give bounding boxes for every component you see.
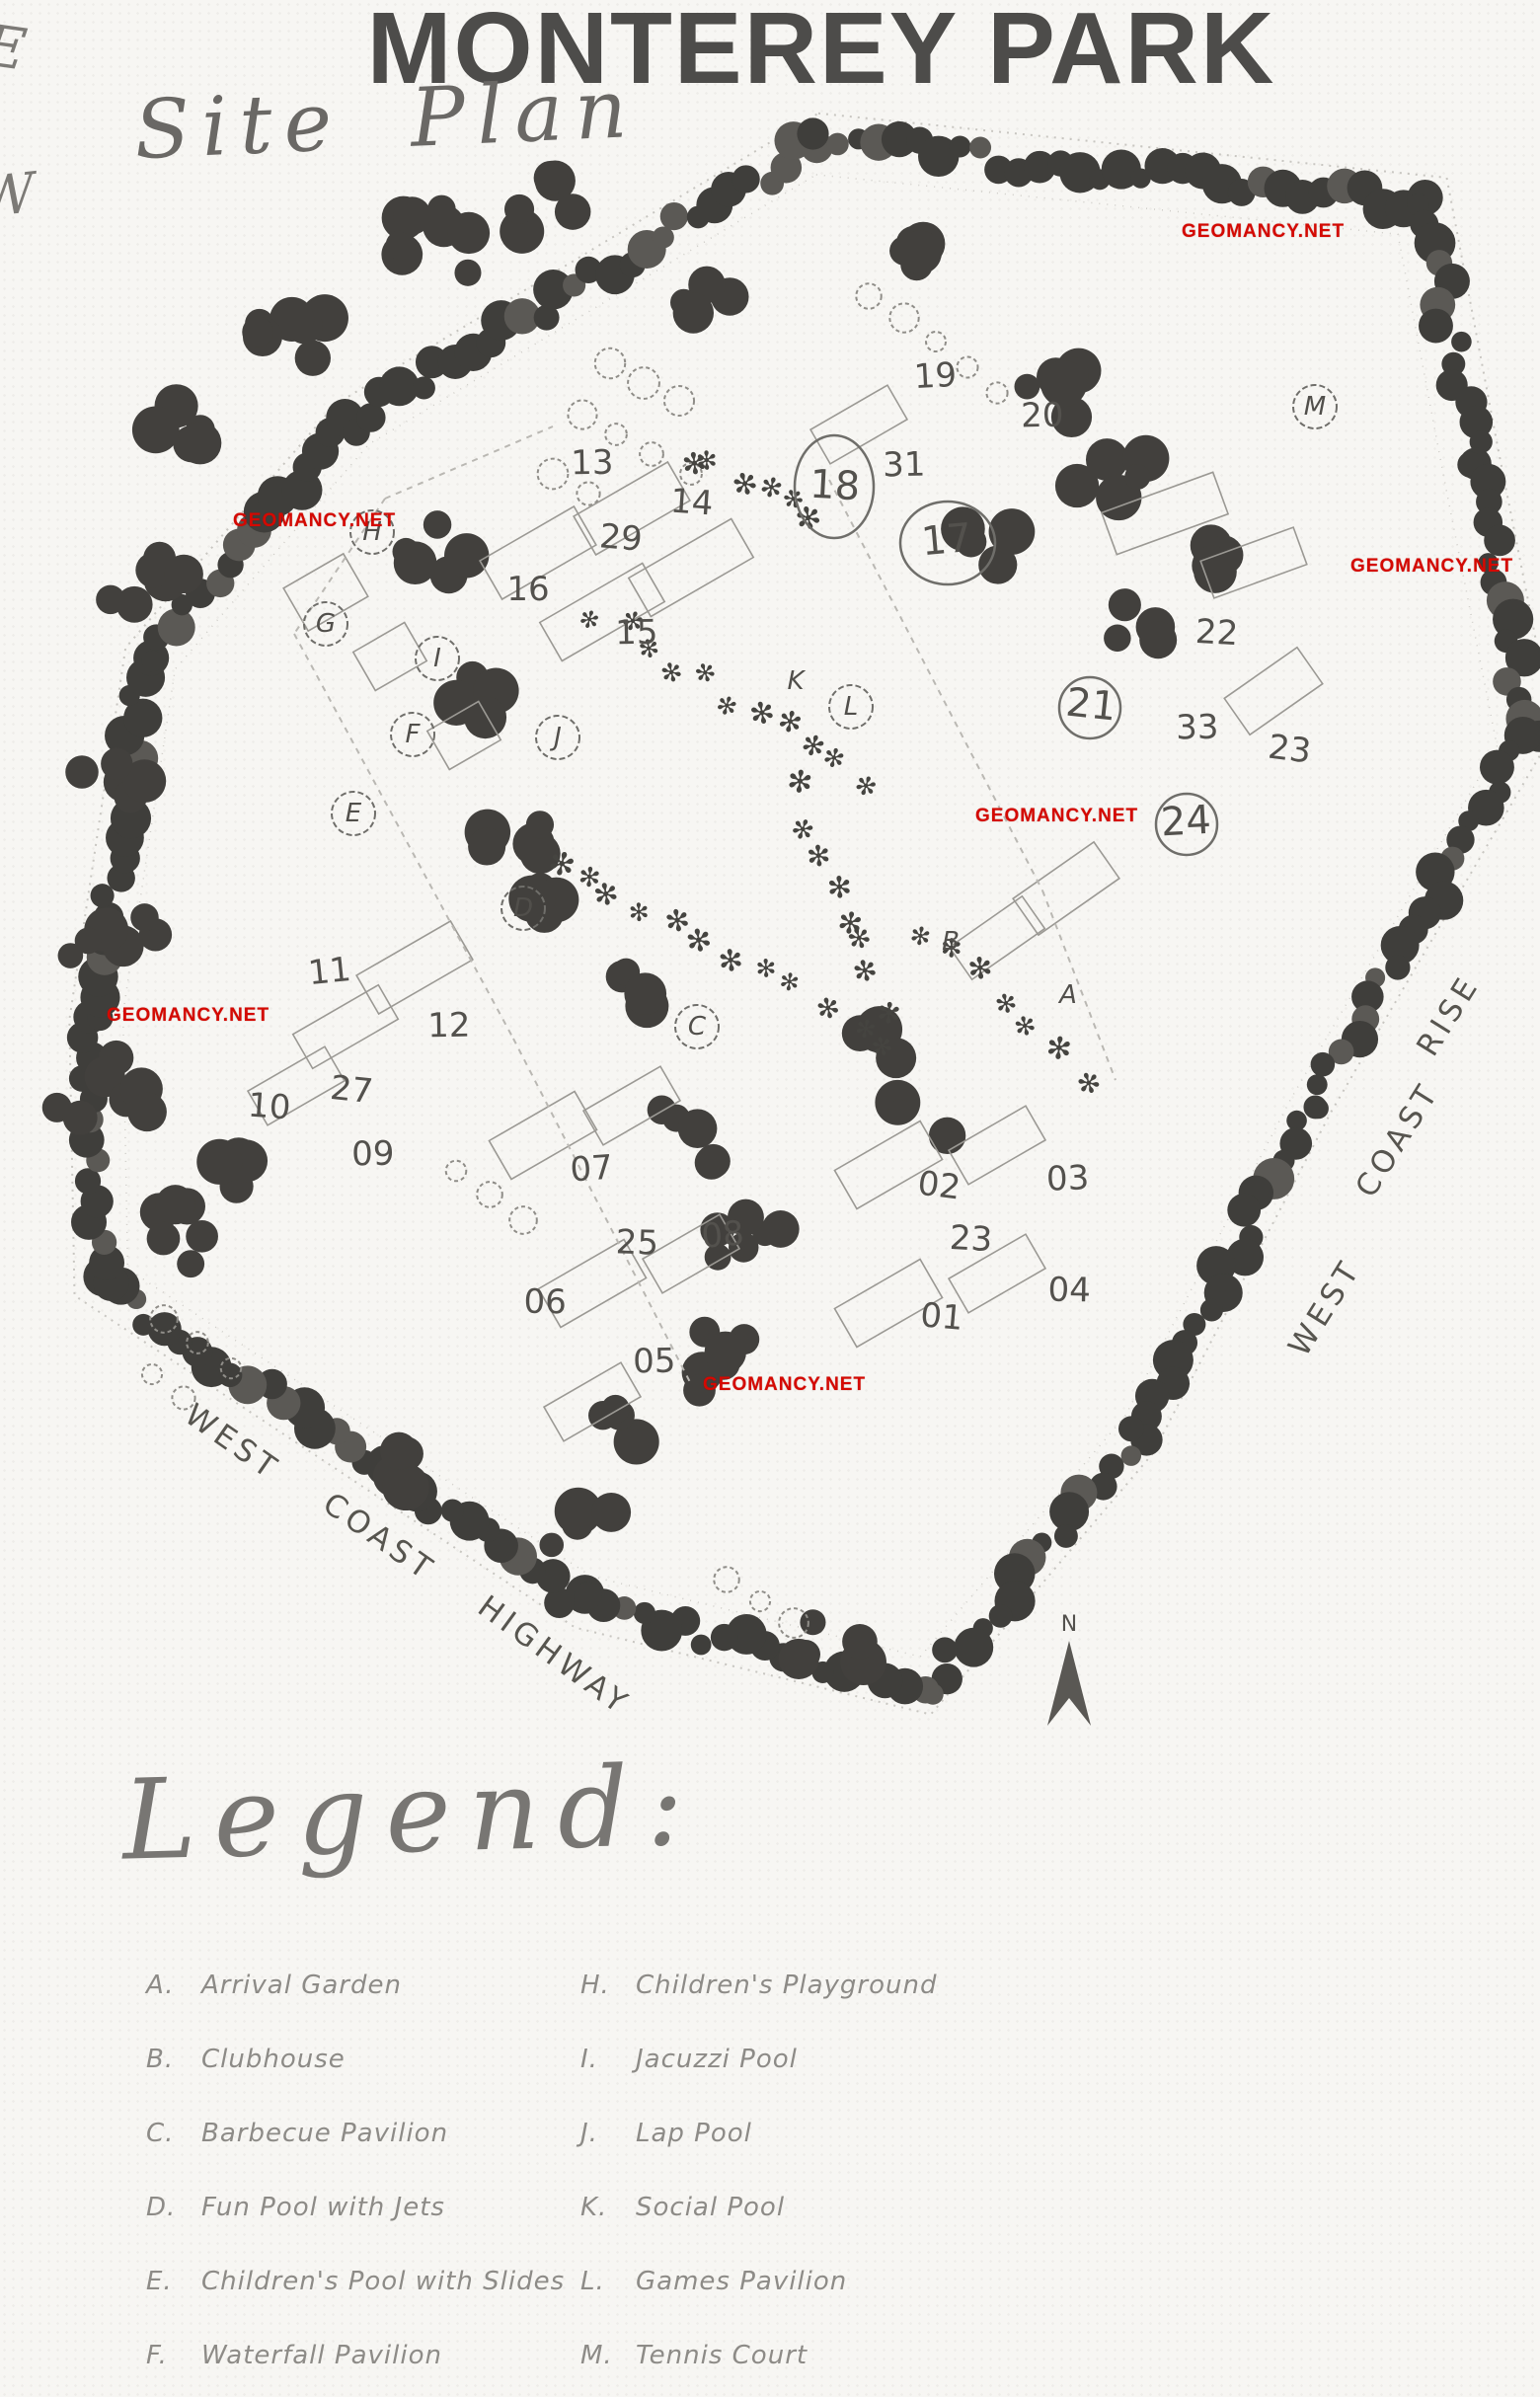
lot-label: 01 [919, 1295, 965, 1339]
legend-item-label: Children's Pool with Slides [201, 2267, 565, 2296]
tree-cluster [156, 1185, 195, 1224]
perimeter-tree [1227, 1194, 1261, 1227]
internal-road [513, 1039, 691, 1384]
building-footprint [1013, 842, 1119, 935]
plant-glyph: ✻ [785, 763, 814, 802]
tree-outline [577, 482, 599, 504]
tree-cluster [842, 1624, 878, 1660]
legend-item-key: I. [580, 2045, 636, 2074]
legend-item-key: L. [580, 2267, 636, 2296]
perimeter-tree [441, 1499, 464, 1521]
tree-outline [926, 332, 946, 351]
legend-item-key: C. [146, 2119, 201, 2148]
plant-glyph: ✻ [1044, 1030, 1074, 1068]
building-footprint [1224, 648, 1323, 735]
tree-cluster [101, 747, 132, 779]
tree-outline [142, 1364, 162, 1384]
street-name-word: COAST [1348, 1076, 1447, 1204]
tree-cluster [196, 1139, 242, 1185]
perimeter-tree [1385, 955, 1410, 979]
legend-item-label: Clubhouse [201, 2045, 346, 2074]
legend-item-key: D. [146, 2193, 201, 2222]
perimeter-tree [634, 1602, 655, 1624]
plant-glyph: ✻ [755, 954, 777, 983]
facility-label: G [316, 609, 336, 639]
lot-label: 31 [883, 445, 926, 486]
plant-glyph: ✻ [628, 897, 650, 927]
lot-label: 02 [915, 1164, 962, 1208]
legend-item-key: H. [580, 1971, 636, 2000]
legend-item-b: B.Clubhouse [146, 2045, 565, 2119]
legend-item-label: Lap Pool [636, 2119, 752, 2148]
lot-label: 20 [1021, 396, 1064, 436]
legend-item-m: M.Tennis Court [580, 2341, 938, 2397]
tree-outline [568, 400, 596, 428]
tree-cluster [63, 1101, 98, 1135]
tree-cluster [555, 193, 591, 230]
plant-glyph: ✻ [691, 657, 720, 690]
perimeter-tree [1054, 1524, 1078, 1548]
lot-label: 16 [506, 570, 549, 609]
building-footprint [629, 519, 753, 617]
plant-glyph: ✻ [683, 921, 715, 961]
facility-label: E [346, 799, 362, 828]
tree-cluster [177, 1250, 204, 1277]
perimeter-tree [413, 376, 435, 399]
plant-glyph: ✻ [1073, 1064, 1106, 1103]
tree-cluster [65, 755, 99, 789]
perimeter-tree [1419, 309, 1453, 344]
tree-cluster [887, 1100, 912, 1124]
legend-item-a: A.Arrival Garden [146, 1971, 565, 2045]
geomancy-watermark: GEOMANCY.NET [1350, 556, 1513, 578]
plant-glyph: ✻ [717, 943, 745, 979]
legend-item-key: B. [146, 2045, 201, 2074]
tree-cluster [800, 1609, 825, 1635]
tree-outline [477, 1182, 502, 1207]
facility-label: A [1057, 980, 1077, 1010]
building-footprint [356, 921, 473, 1014]
building-footprint [353, 623, 426, 691]
plant-glyph: ✻ [849, 952, 881, 990]
tree-cluster [464, 696, 506, 738]
tree-cluster [504, 194, 534, 224]
tree-cluster [1109, 588, 1141, 621]
plant-glyph: ✻ [778, 967, 801, 997]
perimeter-tree [711, 1624, 737, 1651]
legend-item-label: Games Pavilion [636, 2267, 847, 2296]
tree-cluster [678, 1109, 718, 1148]
lot-label: 21 [1064, 680, 1118, 731]
tree-cluster [624, 972, 666, 1015]
legend-column-left: A.Arrival GardenB.ClubhouseC.Barbecue Pa… [146, 1971, 565, 2397]
plant-glyph: ✻ [695, 446, 718, 477]
tree-cluster [696, 1144, 731, 1179]
perimeter-tree [1118, 1416, 1144, 1441]
legend-heading: Legend: [120, 1741, 702, 1885]
legend-item-k: K.Social Pool [580, 2193, 938, 2267]
tree-cluster [423, 510, 452, 539]
scanned-site-plan-page: ✻✻✻✻✻✻✻✻✻✻✻✻✻✻✻✻✻✻✻✻✻✻✻✻✻✻✻✻✻✻✻✻✻✻✻✻✻✻✻✻… [0, 0, 1540, 2397]
tree-cluster [58, 943, 84, 968]
legend-item-key: J. [580, 2119, 636, 2148]
tree-outline [595, 348, 626, 379]
facility-label: J [549, 723, 562, 752]
perimeter-tree [954, 1628, 993, 1667]
lot-label: 05 [633, 1342, 676, 1382]
legend-item-key: E. [146, 2267, 201, 2296]
tree-cluster [186, 1220, 218, 1253]
facility-label: I [433, 644, 441, 673]
tree-outline [628, 367, 659, 399]
tree-cluster [127, 1092, 167, 1131]
lot-label: 33 [1176, 708, 1219, 748]
street-name-word: WEST [1281, 1253, 1368, 1362]
building-footprint [949, 1106, 1045, 1185]
perimeter-tree [1307, 1074, 1328, 1095]
legend-item-label: Tennis Court [636, 2341, 808, 2370]
legend-item-f: F.Waterfall Pavilion [146, 2341, 565, 2397]
legend-item-key: M. [580, 2341, 636, 2370]
legend-item-key: A. [146, 1971, 201, 2000]
perimeter-tree [989, 1604, 1013, 1628]
perimeter-tree [1480, 750, 1514, 785]
tree-cluster [295, 341, 331, 376]
perimeter-tree [732, 165, 760, 193]
tree-cluster [1055, 464, 1099, 507]
facility-label: M [1304, 392, 1326, 422]
tree-cluster [601, 1395, 630, 1424]
tree-outline [750, 1591, 770, 1611]
tree-cluster [468, 827, 505, 865]
building-footprint [950, 896, 1045, 979]
legend-item-l: L.Games Pavilion [580, 2267, 938, 2341]
lot-label: 25 [615, 1222, 659, 1263]
lot-label: 18 [808, 462, 861, 510]
perimeter-tree [1451, 332, 1472, 352]
legend-item-label: Barbecue Pavilion [201, 2119, 448, 2148]
legend-item-i: I.Jacuzzi Pool [580, 2045, 938, 2119]
perimeter-tree [142, 651, 164, 672]
facility-label: K [787, 666, 806, 696]
facility-label: L [844, 692, 859, 722]
tree-outline [538, 459, 569, 490]
tree-cluster [242, 317, 272, 348]
plant-glyph: ✻ [746, 695, 777, 734]
perimeter-road-outline [69, 114, 1540, 1715]
legend-item-j: J.Lap Pool [580, 2119, 938, 2193]
perimeter-tree [691, 1635, 712, 1656]
plant-glyph: ✻ [908, 921, 933, 953]
lot-label: 23 [949, 1218, 993, 1260]
legend-column-right: H.Children's PlaygroundI.Jacuzzi PoolJ.L… [580, 1971, 938, 2397]
plant-glyph: ✻ [826, 871, 853, 906]
lot-label: 09 [351, 1134, 395, 1175]
legend-item-d: D.Fun Pool with Jets [146, 2193, 565, 2267]
legend-item-key: F. [146, 2341, 201, 2370]
plant-glyph: ✻ [657, 657, 685, 690]
perimeter-tree [1308, 1099, 1329, 1120]
legend-item-key: K. [580, 2193, 636, 2222]
perimeter-tree [932, 1637, 958, 1662]
facility-label: C [688, 1012, 707, 1042]
geomancy-watermark: GEOMANCY.NET [233, 510, 396, 532]
perimeter-tree [575, 1582, 602, 1609]
lot-label: 11 [306, 950, 352, 993]
plant-glyph: ✻ [576, 604, 602, 636]
facility-label: F [406, 720, 422, 749]
lot-label: 03 [1045, 1158, 1090, 1198]
north-label: N [1061, 1612, 1077, 1637]
perimeter-tree [1121, 1445, 1141, 1465]
legend-item-label: Jacuzzi Pool [636, 2045, 798, 2074]
lot-label: 29 [598, 516, 645, 560]
tree-cluster [382, 1463, 429, 1510]
perimeter-tree [969, 136, 991, 158]
tree-outline [856, 283, 881, 308]
perimeter-tree [1484, 525, 1515, 557]
lot-label: 17 [920, 515, 974, 565]
tree-outline [714, 1567, 738, 1591]
north-arrow-icon [1047, 1641, 1091, 1726]
tree-cluster [130, 903, 158, 931]
plant-glyph: ✻ [876, 995, 902, 1031]
lot-label: 19 [913, 355, 958, 397]
lot-label: 23 [1266, 728, 1313, 772]
legend-item-e: E.Children's Pool with Slides [146, 2267, 565, 2341]
plant-glyph: ✻ [850, 769, 881, 805]
plant-glyph: ✻ [713, 689, 741, 723]
tree-cluster [448, 212, 490, 254]
tree-cluster [380, 1432, 418, 1470]
tree-cluster [1124, 464, 1150, 490]
lot-label: 24 [1160, 798, 1212, 846]
geomancy-watermark: GEOMANCY.NET [1182, 221, 1345, 243]
facility-label: D [513, 893, 533, 923]
tree-outline [605, 424, 627, 445]
geomancy-watermark: GEOMANCY.NET [107, 1005, 269, 1027]
perimeter-tree [158, 608, 195, 646]
facility-label: B [942, 927, 960, 957]
tree-outline [664, 386, 694, 416]
tree-cluster [929, 1118, 965, 1154]
tree-cluster [393, 196, 430, 234]
legend-item-label: Waterfall Pavilion [201, 2341, 442, 2370]
tree-cluster [454, 260, 481, 286]
tree-cluster [539, 1533, 564, 1558]
plant-glyph: ✻ [813, 990, 843, 1027]
tree-cluster [132, 406, 180, 453]
legend-item-label: Arrival Garden [201, 1971, 402, 2000]
tree-cluster [898, 231, 942, 274]
tree-cluster [648, 1096, 676, 1124]
plant-glyph: ✻ [775, 703, 806, 740]
lot-label: 13 [571, 443, 614, 484]
tree-cluster [779, 1639, 819, 1679]
tree-cluster [394, 541, 437, 584]
lot-label: 10 [247, 1086, 292, 1128]
tree-cluster [96, 585, 125, 615]
lot-label: 15 [615, 613, 658, 654]
tree-outline [509, 1206, 537, 1234]
legend-item-label: Children's Playground [636, 1971, 938, 2000]
street-name-word: RISE [1410, 968, 1487, 1062]
tree-outline [446, 1161, 467, 1182]
perimeter-tree [1311, 1052, 1336, 1077]
tree-outline [640, 442, 663, 466]
tree-cluster [534, 161, 568, 194]
legend-item-label: Fun Pool with Jets [201, 2193, 445, 2222]
lot-label: 04 [1047, 1271, 1091, 1311]
tree-cluster [673, 292, 714, 333]
tree-outline [889, 303, 918, 332]
tree-cluster [147, 1222, 181, 1256]
plant-glyph: ✻ [591, 876, 622, 914]
lot-label: 06 [523, 1282, 567, 1323]
perimeter-tree [356, 403, 385, 431]
perimeter-tree [797, 117, 828, 149]
lot-label: 14 [669, 482, 715, 524]
tree-cluster [591, 1493, 631, 1532]
internal-road [385, 426, 553, 499]
plant-glyph: ✻ [806, 838, 832, 874]
lot-label: 22 [1194, 612, 1239, 654]
lot-label: 07 [569, 1148, 614, 1191]
perimeter-tree [826, 133, 849, 156]
tree-cluster [444, 533, 489, 578]
tree-cluster [705, 1332, 746, 1373]
tree-outline [986, 382, 1007, 403]
legend-item-c: C.Barbecue Pavilion [146, 2119, 565, 2193]
tree-cluster [1139, 621, 1177, 658]
tree-outline [957, 356, 977, 377]
tree-cluster [526, 811, 554, 838]
lot-label: 27 [329, 1068, 375, 1112]
tree-cluster [386, 230, 416, 260]
tree-cluster [1104, 625, 1131, 653]
plant-glyph: ✻ [1012, 1010, 1039, 1044]
perimeter-tree [949, 136, 970, 158]
legend-item-label: Social Pool [636, 2193, 785, 2222]
tree-cluster [165, 555, 203, 593]
perimeter-tree [660, 202, 688, 230]
tree-cluster [179, 422, 221, 464]
geomancy-watermark: GEOMANCY.NET [703, 1374, 866, 1396]
edge-handwriting-fragment-bottom: W [0, 161, 38, 231]
plant-glyph: ✻ [966, 951, 994, 987]
legend-item-h: H.Children's Playground [580, 1971, 938, 2045]
lot-label: 12 [427, 1006, 471, 1046]
geomancy-watermark: GEOMANCY.NET [975, 806, 1138, 827]
lot-label: 08 [700, 1213, 746, 1257]
